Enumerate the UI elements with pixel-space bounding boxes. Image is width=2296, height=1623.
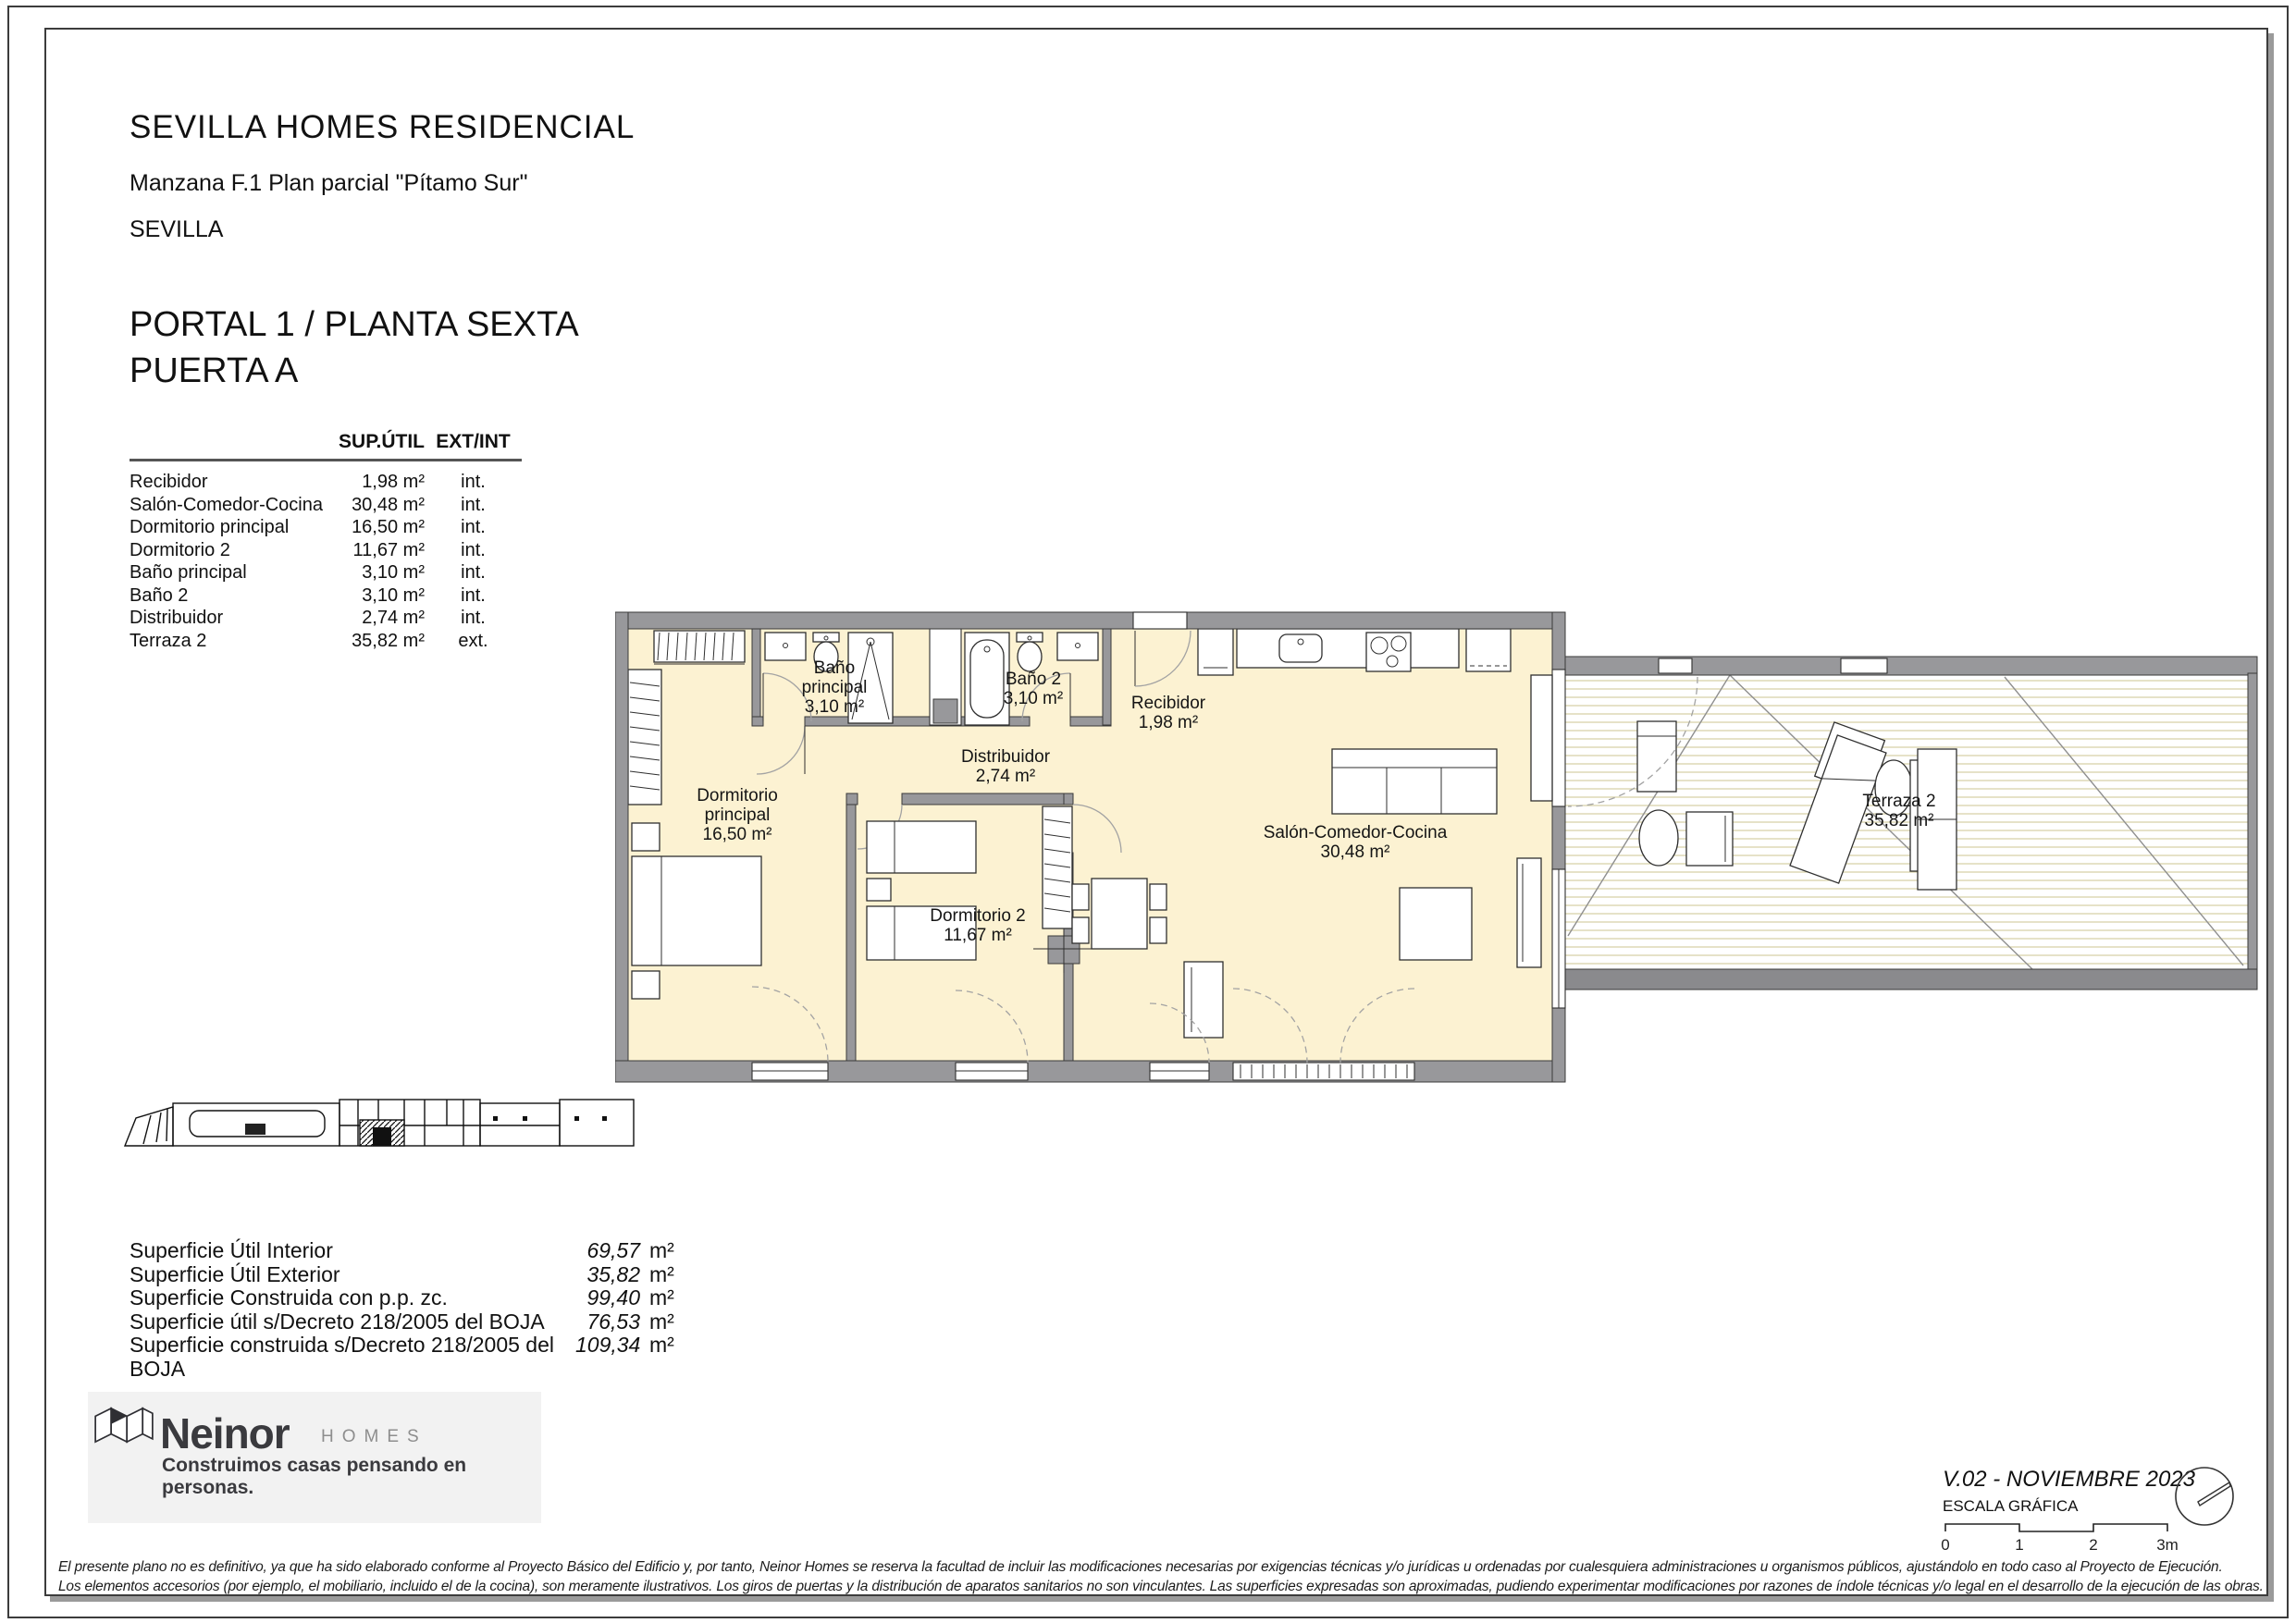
apartment-top-wall xyxy=(615,612,1565,629)
table-row: Terraza 235,82 m²ext. xyxy=(130,630,522,653)
project-title: SEVILLA HOMES RESIDENCIAL xyxy=(130,109,635,146)
summary-value: 69,57 xyxy=(575,1239,640,1263)
nightstand xyxy=(632,823,660,851)
terrace-chair xyxy=(1637,721,1676,792)
dorm2-top-wall xyxy=(902,793,1064,805)
kitchen-counter xyxy=(1237,629,1459,668)
room-surfaces-table: SUP.ÚTIL EXT/INT Recibidor1,98 m²int. Sa… xyxy=(130,431,522,652)
terrace-door-opening xyxy=(1552,670,1565,806)
summary-unit: m² xyxy=(640,1334,682,1381)
room-type: int. xyxy=(425,494,522,517)
north-compass-icon xyxy=(2172,1463,2239,1530)
master-closet xyxy=(654,631,745,664)
room-label-dormitorio-principal: Dormitorioprincipal16,50 m² xyxy=(697,786,778,844)
room-area: 1,98 m² xyxy=(335,471,425,494)
terrace-side-table xyxy=(1639,810,1678,866)
table-row: Dormitorio principal16,50 m²int. xyxy=(130,516,522,539)
table-header: SUP.ÚTIL EXT/INT xyxy=(130,431,522,461)
summary-label: Superficie útil s/Decreto 218/2005 del B… xyxy=(130,1310,575,1334)
disclaimer-line-1: El presente plano no es definitivo, ya q… xyxy=(58,1557,2260,1577)
terrace-wall-pillar xyxy=(1841,658,1887,673)
terrace-parapet xyxy=(1565,969,2257,990)
room-area: 35,82 m² xyxy=(335,630,425,653)
sofa xyxy=(1332,749,1497,814)
sideboard xyxy=(1517,858,1541,967)
neinor-logo-icon xyxy=(93,1403,154,1447)
summary-row: Superficie Útil Exterior35,82m² xyxy=(130,1263,682,1287)
room-area: 3,10 m² xyxy=(335,584,425,608)
plan-version: V.02 - NOVIEMBRE 2023 xyxy=(1943,1467,2195,1493)
room-name: Dormitorio 2 xyxy=(130,539,335,562)
entrance-opening xyxy=(1133,612,1187,629)
room-label-bano-principal: Bañoprincipal3,10 m² xyxy=(802,658,868,717)
summary-unit: m² xyxy=(640,1310,682,1334)
unit-title: PORTAL 1 / PLANTA SEXTA PUERTA A xyxy=(130,301,579,394)
scale-tick: 3m xyxy=(2156,1536,2179,1554)
table-row: Distribuidor2,74 m²int. xyxy=(130,607,522,630)
balcony-window xyxy=(1233,1063,1414,1080)
table-row: Salón-Comedor-Cocina30,48 m²int. xyxy=(130,494,522,517)
armchair xyxy=(1400,888,1472,960)
dorm2-wardrobe xyxy=(1043,806,1072,928)
room-name: Baño principal xyxy=(130,561,335,584)
nightstand xyxy=(867,879,891,901)
summary-value: 76,53 xyxy=(575,1310,640,1334)
brand-tagline: Construimos casas pensando en personas. xyxy=(162,1455,541,1499)
brand-sub: HOMES xyxy=(321,1427,427,1447)
legal-disclaimer: El presente plano no es definitivo, ya q… xyxy=(58,1557,2260,1596)
nightstand xyxy=(632,971,660,999)
scale-label: ESCALA GRÁFICA xyxy=(1943,1497,2078,1516)
kitchen-fridge xyxy=(1466,629,1511,671)
table-row: Baño 23,10 m²int. xyxy=(130,584,522,608)
summary-value: 99,40 xyxy=(575,1286,640,1310)
room-name: Dormitorio principal xyxy=(130,516,335,539)
summary-value: 35,82 xyxy=(575,1263,640,1287)
disclaimer-line-2: Los elementos accesorios (por ejemplo, e… xyxy=(58,1577,2260,1596)
summary-label: Superficie Útil Interior xyxy=(130,1239,575,1263)
summary-row: Superficie útil s/Decreto 218/2005 del B… xyxy=(130,1310,682,1334)
dining-table xyxy=(1092,879,1147,949)
bath-band-wall xyxy=(752,717,763,726)
summary-row: Superficie Útil Interior69,57m² xyxy=(130,1239,682,1263)
room-area: 11,67 m² xyxy=(335,539,425,562)
scale-tick: 0 xyxy=(1941,1536,1949,1554)
summary-unit: m² xyxy=(640,1263,682,1287)
plan-sheet: SEVILLA HOMES RESIDENCIAL Manzana F.1 Pl… xyxy=(0,0,2296,1623)
room-name: Baño 2 xyxy=(130,584,335,608)
apartment-left-wall xyxy=(615,612,628,1082)
terrace-wall-pillar xyxy=(1659,658,1692,673)
project-subtitle: Manzana F.1 Plan parcial "Pítamo Sur" xyxy=(130,170,527,197)
tv-unit xyxy=(1184,962,1223,1038)
table-row: Baño principal3,10 m²int. xyxy=(130,561,522,584)
col-type: EXT/INT xyxy=(425,431,522,453)
table-row: Dormitorio 211,67 m²int. xyxy=(130,539,522,562)
project-city: SEVILLA xyxy=(130,216,223,243)
room-label-recibidor: Recibidor1,98 m² xyxy=(1131,694,1205,732)
room-name: Terraza 2 xyxy=(130,630,335,653)
dorm2-right-wall xyxy=(1064,793,1073,805)
summary-label: Superficie Construida con p.p. zc. xyxy=(130,1286,575,1310)
room-label-terraza-2: Terraza 235,82 m² xyxy=(1862,792,1935,830)
left-wardrobe xyxy=(628,670,661,805)
room-type: int. xyxy=(425,561,522,584)
floor-plan: Bañoprincipal3,10 m² Baño 23,10 m² Recib… xyxy=(615,610,2271,1086)
brand-block: Neinor HOMES Construimos casas pensando … xyxy=(88,1392,541,1523)
room-area: 2,74 m² xyxy=(335,607,425,630)
room-area: 16,50 m² xyxy=(335,516,425,539)
room-type: int. xyxy=(425,539,522,562)
summary-label: Superficie construida s/Decreto 218/2005… xyxy=(130,1334,575,1381)
room-label-salon: Salón-Comedor-Cocina30,48 m² xyxy=(1264,823,1448,862)
brand-name: Neinor xyxy=(160,1408,290,1458)
summary-row: Superficie Construida con p.p. zc.99,40m… xyxy=(130,1286,682,1310)
terrace-door-leaf xyxy=(1531,675,1552,801)
room-type: ext. xyxy=(425,630,522,653)
summary-unit: m² xyxy=(640,1239,682,1263)
room-area: 30,48 m² xyxy=(335,494,425,517)
bath1-left-wall xyxy=(752,629,760,721)
room-type: int. xyxy=(425,607,522,630)
summary-value: 109,34 xyxy=(575,1334,640,1381)
room-type: int. xyxy=(425,584,522,608)
col-area: SUP.ÚTIL xyxy=(335,431,425,453)
room-label-bano-2: Baño 23,10 m² xyxy=(1004,670,1063,708)
room-type: int. xyxy=(425,516,522,539)
summary-row: Superficie construida s/Decreto 218/2005… xyxy=(130,1334,682,1381)
room-label-dormitorio-2: Dormitorio 211,67 m² xyxy=(930,906,1025,945)
table-row: Recibidor1,98 m²int. xyxy=(130,471,522,494)
room-name: Salón-Comedor-Cocina xyxy=(130,494,335,517)
room-name: Recibidor xyxy=(130,471,335,494)
room-area: 3,10 m² xyxy=(335,561,425,584)
shaft-duct xyxy=(933,699,957,723)
scale-tick: 2 xyxy=(2089,1536,2097,1554)
summary-label: Superficie Útil Exterior xyxy=(130,1263,575,1287)
terrace-right-wall xyxy=(2248,673,2257,969)
room-name: Distribuidor xyxy=(130,607,335,630)
key-plan xyxy=(123,1088,636,1150)
summary-unit: m² xyxy=(640,1286,682,1310)
graphic-scale-bar: 0 1 2 3m xyxy=(1941,1517,2181,1557)
master-partition-wall xyxy=(846,793,856,1063)
surface-summary: Superficie Útil Interior69,57m² Superfic… xyxy=(130,1239,682,1381)
hall-wall xyxy=(846,793,858,805)
room-label-distribuidor: Distribuidor2,74 m² xyxy=(961,747,1050,786)
col-room xyxy=(130,431,335,453)
bath2-right-wall xyxy=(1103,629,1111,725)
room-type: int. xyxy=(425,471,522,494)
scale-tick: 1 xyxy=(2015,1536,2023,1554)
